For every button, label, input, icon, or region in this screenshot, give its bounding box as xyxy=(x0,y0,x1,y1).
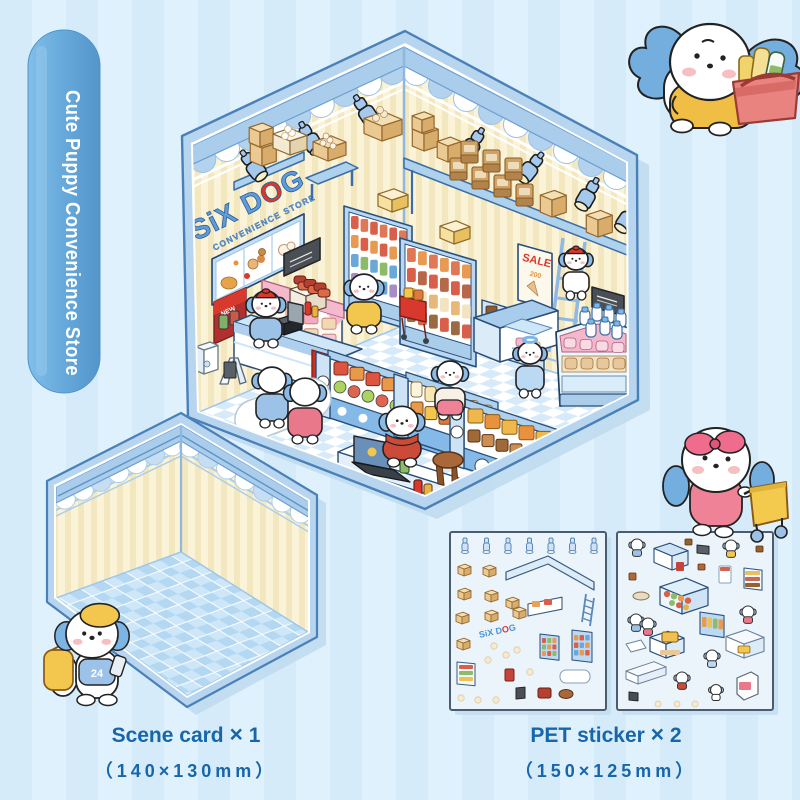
svg-text:（140×130mm）: （140×130mm） xyxy=(95,761,278,781)
svg-text:（150×125mm）: （150×125mm） xyxy=(515,761,698,781)
svg-text:PET sticker × 2: PET sticker × 2 xyxy=(530,721,681,747)
svg-text:Scene card × 1: Scene card × 1 xyxy=(112,721,261,747)
svg-text:Cute Puppy Convenience Store: Cute Puppy Convenience Store xyxy=(61,90,83,376)
svg-text:24: 24 xyxy=(91,668,104,680)
